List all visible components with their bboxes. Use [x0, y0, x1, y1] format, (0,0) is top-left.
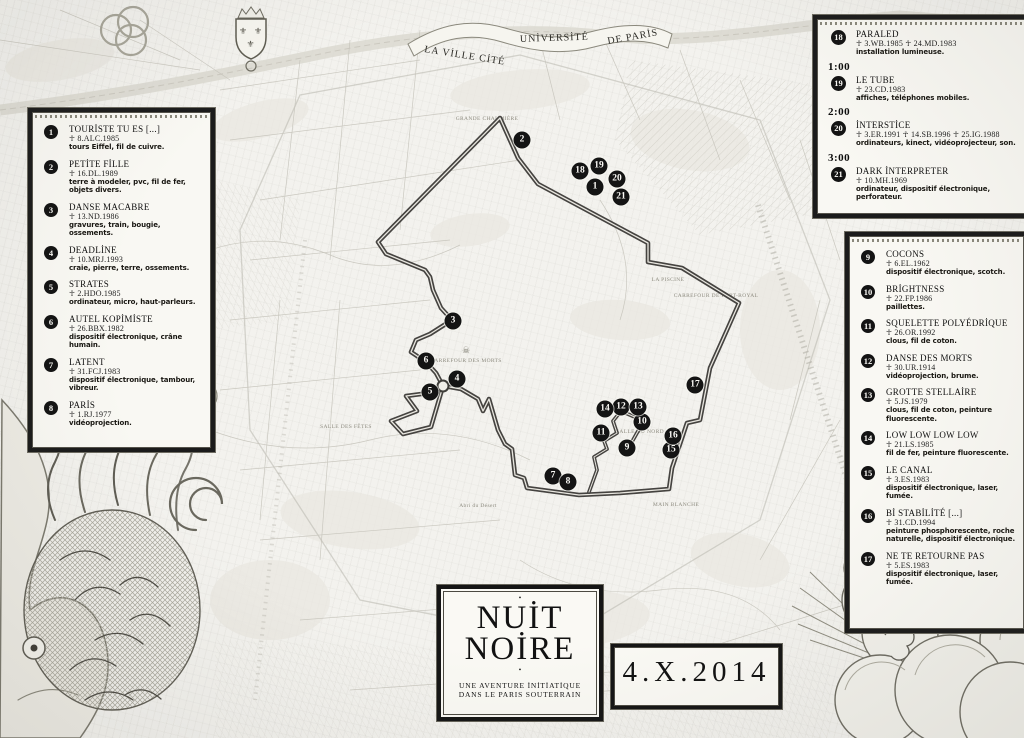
- legend-item-number: 16: [861, 509, 875, 523]
- legend-item-number: 6: [44, 315, 58, 329]
- legend-item-title: PARALED: [856, 29, 1019, 39]
- legend-item-materials: tours Eiffel, fil de cuivre.: [69, 143, 201, 152]
- legend-item-code: ☥ 10.MH.1969: [856, 176, 1019, 185]
- legend-panel-topright: 18 PARALED ☥ 3.WB.1985 ☥ 24.MD.1983 inst…: [813, 15, 1024, 218]
- legend-item-materials: ordinateur, dispositif électronique, per…: [856, 185, 1019, 202]
- legend-panel-left: 1 TOURİSTE TU ES [...] ☥ 8.ALC.1985 tour…: [28, 108, 215, 452]
- legend-item-code: ☥ 22.FP.1986: [886, 294, 1016, 303]
- legend-item-materials: affiches, téléphones mobiles.: [856, 94, 1019, 103]
- legend-item-code: ☥ 30.UR.1914: [886, 363, 1016, 372]
- event-subtitle-line2: DANS LE PARIS SOUTERRAIN: [441, 690, 599, 699]
- site-marker: 8: [560, 474, 577, 491]
- legend-item-materials: clous, fil de coton.: [886, 337, 1016, 346]
- event-title-line2: NOİRE: [441, 634, 599, 665]
- legend-item: 15 LE CANAL ☥ 3.ES.1983 dispositif élect…: [861, 465, 1016, 501]
- legend-item-code: ☥ 10.MRJ.1993: [69, 255, 201, 264]
- legend-item: 6 AUTEL KOPİMİSTE ☥ 26.BBX.1982 disposit…: [44, 314, 201, 350]
- legend-item-title: STRATES: [69, 279, 201, 289]
- legend-item-time: 2:00: [828, 107, 1019, 118]
- legend-item-code: ☥ 31.CD.1994: [886, 518, 1016, 527]
- legend-item-materials: dispositif électronique, scotch.: [886, 268, 1016, 277]
- legend-item-code: ☥ 8.ALC.1985: [69, 134, 201, 143]
- legend-item: 9 COCONS ☥ 6.EL.1962 dispositif électron…: [861, 249, 1016, 277]
- event-title-line1: NUİT: [441, 603, 599, 634]
- legend-item-number: 4: [44, 246, 58, 260]
- legend-item-materials: ordinateurs, kinect, vidéoprojecteur, so…: [856, 139, 1019, 148]
- legend-item-code: ☥ 1.RJ.1977: [69, 410, 201, 419]
- legend-item: 18 PARALED ☥ 3.WB.1985 ☥ 24.MD.1983 inst…: [831, 29, 1019, 57]
- legend-item-title: PETİTE FİLLE: [69, 159, 201, 169]
- site-marker: 10: [634, 414, 651, 431]
- site-marker: 18: [572, 163, 589, 180]
- legend-item-time: 1:00: [828, 62, 1019, 73]
- legend-item-code: ☥ 5.ES.1983: [886, 561, 1016, 570]
- legend-item-title: PARİS: [69, 400, 201, 410]
- legend-item-title: SQUELETTE POLYÉDRİQUE: [886, 318, 1016, 328]
- legend-item: 2:00 20 İNTERSTİCE ☥ 3.ER.1991 ☥ 14.SB.1…: [831, 106, 1019, 148]
- legend-item-number: 10: [861, 285, 875, 299]
- legend-item-code: ☥ 2.HDO.1985: [69, 289, 201, 298]
- legend-item-title: LE CANAL: [886, 465, 1016, 475]
- legend-item-materials: paillettes.: [886, 303, 1016, 312]
- legend-item: 1 TOURİSTE TU ES [...] ☥ 8.ALC.1985 tour…: [44, 124, 201, 152]
- site-marker: 17: [687, 377, 704, 394]
- legend-item-materials: dispositif électronique, crâne humain.: [69, 333, 201, 350]
- legend-item-materials: dispositif électronique, tambour, vibreu…: [69, 376, 201, 393]
- legend-item: 5 STRATES ☥ 2.HDO.1985 ordinateur, micro…: [44, 279, 201, 307]
- site-marker: 6: [418, 353, 435, 370]
- legend-item: 8 PARİS ☥ 1.RJ.1977 vidéoprojection.: [44, 400, 201, 428]
- legend-item-materials: terre à modeler, pvc, fil de fer, objets…: [69, 178, 201, 195]
- legend-item-materials: vidéoprojection, brume.: [886, 372, 1016, 381]
- site-marker: 3: [445, 313, 462, 330]
- event-date-box: 4.X.2014: [611, 644, 782, 709]
- site-marker: 11: [593, 425, 610, 442]
- legend-item: 3 DANSE MACABRE ☥ 13.ND.1986 gravures, t…: [44, 202, 201, 238]
- panel-ornament: [35, 115, 208, 118]
- legend-item-title: İNTERSTİCE: [856, 120, 1019, 130]
- legend-item-number: 3: [44, 203, 58, 217]
- site-marker: 2: [514, 132, 531, 149]
- site-marker: 21: [613, 189, 630, 206]
- legend-item: 10 BRİGHTNESS ☥ 22.FP.1986 paillettes.: [861, 284, 1016, 312]
- site-marker: 16: [665, 428, 682, 445]
- legend-item-code: ☥ 26.BBX.1982: [69, 324, 201, 333]
- legend-item: 3:00 21 DARK İNTERPRETER ☥ 10.MH.1969 or…: [831, 152, 1019, 202]
- legend-item: 11 SQUELETTE POLYÉDRİQUE ☥ 26.OR.1992 cl…: [861, 318, 1016, 346]
- legend-item-code: ☥ 16.DL.1989: [69, 169, 201, 178]
- legend-item-number: 11: [861, 319, 875, 333]
- legend-item-title: DANSE DES MORTS: [886, 353, 1016, 363]
- legend-item-number: 13: [861, 388, 875, 402]
- legend-item-materials: gravures, train, bougie, ossements.: [69, 221, 201, 238]
- site-marker: 4: [449, 371, 466, 388]
- legend-item-number: 1: [44, 125, 58, 139]
- nuit-noire-poster: LA VİLLE CİTÉ UNİVERSİTÉ DE PARİS ⚜ ⚜ ⚜: [0, 0, 1024, 738]
- legend-item-title: LATENT: [69, 357, 201, 367]
- legend-item-code: ☥ 13.ND.1986: [69, 212, 201, 221]
- legend-item-code: ☥ 3.ES.1983: [886, 475, 1016, 484]
- legend-item: 14 LOW LOW LOW LOW ☥ 21.LS.1985 fil de f…: [861, 430, 1016, 458]
- legend-item-number: 20: [831, 121, 846, 136]
- event-subtitle-line1: UNE AVENTURE İNİTİATİQUE: [441, 681, 599, 690]
- legend-item-title: TOURİSTE TU ES [...]: [69, 124, 201, 134]
- legend-item-number: 12: [861, 354, 875, 368]
- legend-item-title: DANSE MACABRE: [69, 202, 201, 212]
- legend-item-title: DARK İNTERPRETER: [856, 166, 1019, 176]
- legend-item-materials: vidéoprojection.: [69, 419, 201, 428]
- legend-item-title: Bİ STABİLİTÉ [...]: [886, 508, 1016, 518]
- legend-item-code: ☥ 3.ER.1991 ☥ 14.SB.1996 ☥ 25.IG.1988: [856, 130, 1019, 139]
- event-title-box: • NUİT NOİRE • UNE AVENTURE İNİTİATİQUE …: [437, 585, 603, 721]
- legend-item-number: 7: [44, 358, 58, 372]
- panel-ornament: [852, 239, 1021, 242]
- legend-item-number: 8: [44, 401, 58, 415]
- legend-item-materials: dispositif électronique, laser, fumée.: [886, 570, 1016, 587]
- legend-item-title: BRİGHTNESS: [886, 284, 1016, 294]
- site-marker: 20: [609, 171, 626, 188]
- legend-item-time: 3:00: [828, 153, 1019, 164]
- legend-item-number: 17: [861, 552, 875, 566]
- legend-item: 2 PETİTE FİLLE ☥ 16.DL.1989 terre à mode…: [44, 159, 201, 195]
- legend-item-title: COCONS: [886, 249, 1016, 259]
- legend-item-title: NE TE RETOURNE PAS: [886, 551, 1016, 561]
- legend-item-code: ☥ 6.EL.1962: [886, 259, 1016, 268]
- legend-item: 12 DANSE DES MORTS ☥ 30.UR.1914 vidéopro…: [861, 353, 1016, 381]
- legend-item-number: 21: [831, 167, 846, 182]
- legend-item-code: ☥ 5.JS.1979: [886, 397, 1016, 406]
- legend-item: 7 LATENT ☥ 31.FCJ.1983 dispositif électr…: [44, 357, 201, 393]
- event-date: 4.X.2014: [614, 647, 779, 698]
- legend-item-code: ☥ 21.LS.1985: [886, 440, 1016, 449]
- legend-item: 4 DEADLİNE ☥ 10.MRJ.1993 craie, pierre, …: [44, 245, 201, 273]
- site-marker: 9: [619, 440, 636, 457]
- legend-item-code: ☥ 26.OR.1992: [886, 328, 1016, 337]
- legend-item-title: DEADLİNE: [69, 245, 201, 255]
- legend-item-materials: clous, fil de coton, peinture fluorescen…: [886, 406, 1016, 423]
- legend-item-materials: craie, pierre, terre, ossements.: [69, 264, 201, 273]
- legend-item-title: LOW LOW LOW LOW: [886, 430, 1016, 440]
- legend-panel-right: 9 COCONS ☥ 6.EL.1962 dispositif électron…: [845, 232, 1024, 633]
- legend-item-title: LE TUBE: [856, 75, 1019, 85]
- site-marker: 14: [597, 401, 614, 418]
- legend-item-code: ☥ 31.FCJ.1983: [69, 367, 201, 376]
- legend-item-title: GROTTE STELLAİRE: [886, 387, 1016, 397]
- legend-item-materials: ordinateur, micro, haut-parleurs.: [69, 298, 201, 307]
- legend-item: 16 Bİ STABİLİTÉ [...] ☥ 31.CD.1994 peint…: [861, 508, 1016, 544]
- site-marker: 1: [587, 179, 604, 196]
- legend-item: 13 GROTTE STELLAİRE ☥ 5.JS.1979 clous, f…: [861, 387, 1016, 423]
- legend-item-materials: dispositif électronique, laser, fumée.: [886, 484, 1016, 501]
- legend-item-materials: fil de fer, peinture fluorescente.: [886, 449, 1016, 458]
- legend-item-number: 5: [44, 280, 58, 294]
- legend-item-number: 19: [831, 76, 846, 91]
- legend-item-code: ☥ 3.WB.1985 ☥ 24.MD.1983: [856, 39, 1019, 48]
- site-marker: 12: [613, 399, 630, 416]
- legend-item-materials: peinture phosphorescente, roche naturell…: [886, 527, 1016, 544]
- legend-item-title: AUTEL KOPİMİSTE: [69, 314, 201, 324]
- legend-item-code: ☥ 23.CD.1983: [856, 85, 1019, 94]
- panel-ornament: [820, 22, 1024, 25]
- legend-item-number: 14: [861, 431, 875, 445]
- legend-item: 1:00 19 LE TUBE ☥ 23.CD.1983 affiches, t…: [831, 61, 1019, 103]
- legend-item-number: 18: [831, 30, 846, 45]
- legend-item-number: 9: [861, 250, 875, 264]
- site-marker: 19: [591, 158, 608, 175]
- legend-item-materials: installation lumineuse.: [856, 48, 1019, 57]
- site-marker: 13: [630, 399, 647, 416]
- site-marker: 5: [422, 384, 439, 401]
- legend-item-number: 2: [44, 160, 58, 174]
- legend-item: 17 NE TE RETOURNE PAS ☥ 5.ES.1983 dispos…: [861, 551, 1016, 587]
- legend-item-number: 15: [861, 466, 875, 480]
